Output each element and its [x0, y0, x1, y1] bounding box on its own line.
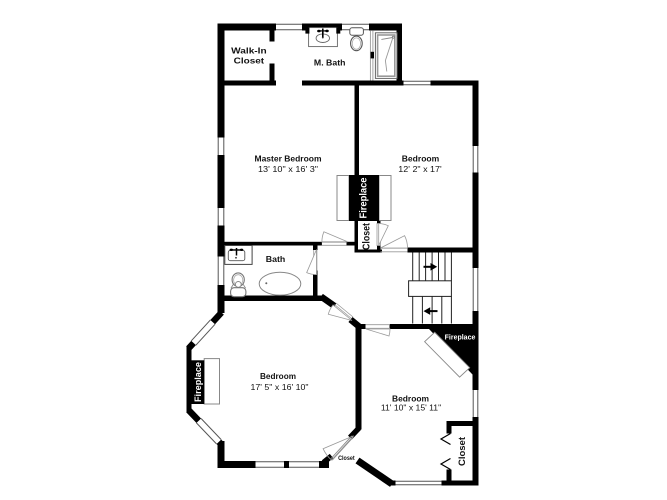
svg-text:11' 10" x 15' 11": 11' 10" x 15' 11": [381, 404, 441, 413]
svg-text:Master Bedroom: Master Bedroom: [255, 153, 322, 163]
svg-text:Closet: Closet: [338, 456, 355, 462]
svg-text:Closet: Closet: [457, 436, 468, 466]
svg-text:Closet: Closet: [361, 222, 372, 250]
svg-text:Bath: Bath: [266, 254, 286, 264]
svg-text:Bedroom: Bedroom: [392, 394, 429, 404]
svg-text:Bedroom: Bedroom: [260, 371, 296, 381]
svg-text:Fireplace: Fireplace: [193, 362, 203, 402]
svg-text:12' 2" x 17': 12' 2" x 17': [398, 165, 442, 174]
svg-text:Fireplace: Fireplace: [445, 335, 476, 342]
svg-text:Bedroom: Bedroom: [402, 153, 440, 163]
svg-text:Closet: Closet: [234, 55, 265, 65]
svg-text:Walk-In: Walk-In: [231, 45, 267, 55]
svg-text:M. Bath: M. Bath: [314, 57, 346, 67]
svg-text:17' 5" x 16' 10": 17' 5" x 16' 10": [251, 383, 309, 392]
svg-text:Fireplace: Fireplace: [359, 177, 370, 218]
svg-text:13' 10" x 16' 3": 13' 10" x 16' 3": [258, 165, 318, 174]
